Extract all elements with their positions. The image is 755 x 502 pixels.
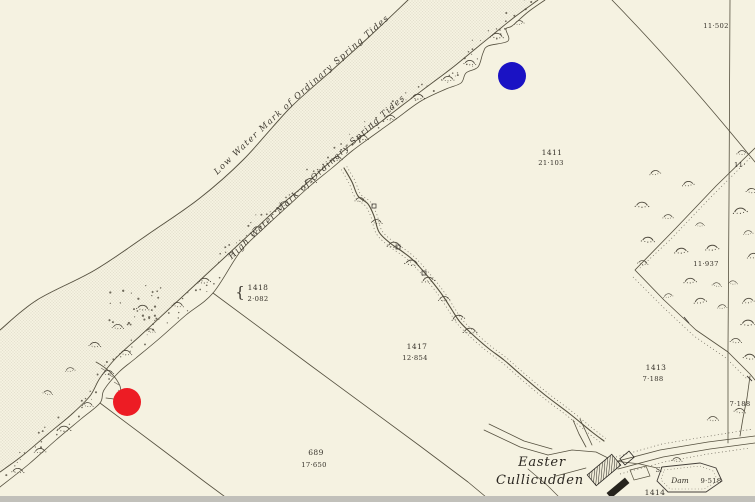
- pebble: [168, 312, 170, 314]
- pebble: [112, 321, 114, 323]
- pebble: [157, 297, 159, 299]
- pebble: [154, 305, 156, 307]
- pebble: [349, 134, 350, 135]
- pebble: [480, 40, 481, 41]
- pebble: [131, 293, 132, 294]
- red-marker[interactable]: [113, 388, 141, 416]
- pebble: [81, 400, 83, 402]
- pebble: [142, 315, 144, 317]
- pebble: [110, 303, 111, 304]
- pebble: [228, 244, 230, 246]
- pebble: [195, 289, 197, 291]
- pebble: [85, 398, 86, 399]
- pebble: [182, 298, 183, 299]
- pebble: [95, 391, 97, 393]
- area-value-9518: 9·518: [701, 477, 722, 485]
- pebble: [17, 462, 18, 463]
- pebble: [106, 361, 108, 363]
- pebble: [219, 253, 221, 255]
- pebble: [418, 86, 420, 88]
- pebble: [89, 391, 90, 392]
- pebble: [131, 340, 132, 341]
- pebble: [147, 334, 148, 335]
- pebble: [405, 92, 406, 93]
- parcel-1411-area: 21·103: [538, 159, 564, 167]
- parcel-1417-area: 12·854: [402, 354, 428, 362]
- pebble: [421, 84, 423, 86]
- pebble: [472, 40, 473, 41]
- pebble: [255, 214, 256, 215]
- area-value-right-edge: 11·: [734, 161, 746, 169]
- parcel-1413-area: 7·188: [643, 375, 664, 383]
- pebble: [151, 309, 153, 311]
- pebble: [120, 302, 121, 303]
- pebble: [452, 72, 454, 74]
- pebble: [167, 322, 168, 323]
- pebble: [104, 365, 105, 366]
- pebble: [109, 291, 111, 293]
- place-name-line2: Cullicudden: [496, 473, 584, 488]
- pebble: [137, 310, 139, 312]
- pebble: [131, 346, 132, 347]
- pebble: [38, 432, 40, 434]
- pebble: [270, 211, 271, 212]
- pebble: [154, 320, 155, 321]
- pebble: [137, 298, 139, 300]
- pebble: [148, 316, 150, 318]
- map-canvas: Low Water Mark of Ordinary Spring Tides …: [0, 0, 755, 502]
- pebble: [145, 285, 146, 286]
- pebble: [122, 290, 124, 292]
- pebble: [20, 459, 21, 460]
- pebble: [35, 446, 36, 447]
- pebble: [457, 74, 459, 76]
- area-value-7188: 7·188: [730, 400, 751, 408]
- parcel-1418-number: 1418: [248, 283, 269, 292]
- pebble: [42, 430, 44, 432]
- pebble: [505, 20, 507, 22]
- pebble: [69, 424, 70, 425]
- pebble: [472, 48, 474, 50]
- pebble: [5, 474, 7, 476]
- pebble: [471, 54, 472, 55]
- pebble: [134, 316, 135, 317]
- pebble: [488, 30, 489, 31]
- pebble: [266, 213, 268, 215]
- pebble: [156, 290, 158, 292]
- pebble: [206, 284, 208, 286]
- parcel-1418-brace: {: [235, 283, 245, 301]
- pebble: [14, 465, 15, 466]
- pebble: [152, 291, 154, 293]
- pebble: [213, 283, 215, 285]
- pebble: [455, 76, 456, 77]
- pebble: [19, 452, 20, 453]
- pebble: [247, 225, 249, 227]
- pebble: [187, 310, 188, 311]
- pebble: [260, 214, 262, 216]
- pebble: [447, 82, 448, 83]
- pebble: [57, 416, 59, 418]
- pebble: [108, 319, 110, 321]
- pebble: [97, 374, 99, 376]
- pebble: [449, 75, 450, 76]
- pebble: [472, 66, 473, 67]
- pebble: [201, 280, 202, 281]
- sheet-edge-band: [0, 496, 755, 502]
- pebble: [390, 118, 391, 119]
- pebble: [415, 99, 416, 100]
- pebble: [56, 434, 58, 436]
- pebble: [81, 407, 83, 409]
- parcel-1413-number: 1413: [646, 363, 667, 372]
- pebble: [178, 312, 179, 313]
- pebble: [225, 252, 226, 253]
- pebble: [154, 315, 156, 317]
- parcel-689-number: 689: [308, 448, 324, 457]
- pebble: [127, 324, 129, 326]
- pebble: [505, 12, 507, 14]
- pebble: [78, 416, 80, 418]
- pebble: [13, 471, 14, 472]
- pebble: [496, 28, 497, 29]
- pebble: [224, 246, 226, 248]
- pebble: [41, 441, 43, 443]
- pebble: [279, 202, 280, 203]
- parcel-689-area: 17·650: [301, 461, 327, 469]
- pebble: [151, 295, 152, 296]
- dam-label: Dam: [670, 476, 689, 485]
- pebble: [457, 72, 458, 73]
- pebble: [378, 127, 380, 129]
- pebble: [236, 242, 237, 243]
- pebble: [206, 291, 207, 292]
- pebble: [120, 356, 121, 357]
- pebble: [433, 90, 435, 92]
- pebble: [178, 317, 179, 318]
- pebble: [130, 351, 131, 352]
- pebble: [128, 322, 130, 324]
- parcel-1411-number: 1411: [542, 148, 563, 157]
- pebble: [44, 427, 45, 428]
- blue-marker[interactable]: [498, 62, 526, 90]
- pebble: [160, 287, 162, 289]
- pebble: [306, 169, 308, 171]
- sluice-label: Sl: [656, 466, 663, 474]
- area-value-11502: 11·502: [703, 22, 729, 30]
- pebble: [144, 343, 146, 345]
- pebble: [340, 143, 342, 145]
- pebble: [364, 121, 365, 122]
- pebble: [91, 399, 92, 400]
- pebble: [530, 1, 532, 3]
- pebble: [333, 147, 335, 149]
- pebble: [108, 378, 110, 380]
- pebble: [133, 308, 135, 310]
- place-name-line1: Easter: [517, 455, 566, 470]
- area-value-11937: 11·937: [693, 260, 719, 268]
- pebble: [143, 319, 145, 321]
- pebble: [468, 51, 470, 53]
- parcel-1418-area: 2·082: [248, 295, 269, 303]
- pebble: [250, 222, 251, 223]
- pebble: [477, 58, 478, 59]
- pebble: [239, 240, 240, 241]
- parcel-1417-number: 1417: [407, 342, 428, 351]
- pebble: [130, 324, 132, 326]
- pebble: [219, 277, 221, 279]
- pebble: [40, 446, 42, 448]
- pebble: [199, 289, 201, 291]
- parcel-1414-number: 1414: [645, 488, 666, 497]
